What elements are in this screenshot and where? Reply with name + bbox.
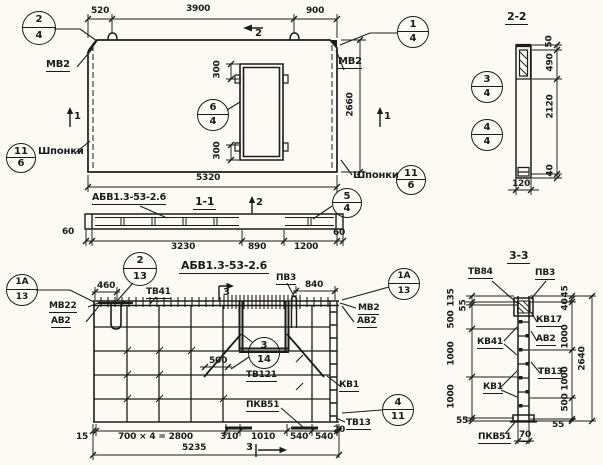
callout-num: 11 <box>397 169 425 179</box>
marker-3-top: 3 <box>223 288 230 298</box>
dim-1200: 1200 <box>294 243 318 252</box>
s33-base <box>513 415 534 421</box>
dim-540-a: 540 <box>290 433 308 442</box>
label-kv41: КВ41 <box>477 338 503 349</box>
s22-bottom-insert <box>518 168 529 177</box>
label-pkv51-plan: ПКВ51 <box>246 401 279 412</box>
callout-sheet: 4 <box>398 34 428 44</box>
label-pv3-s33: ПВ3 <box>535 269 555 280</box>
section-marker-arrows <box>67 25 383 454</box>
dim-1000-r1: 1000 <box>562 317 571 357</box>
dim-1000-l1: 1000 <box>448 334 457 374</box>
dim-60-left: 60 <box>62 228 74 237</box>
callout-sheet: 4 <box>23 31 55 41</box>
callout-num: 4 <box>383 398 413 408</box>
dim-55-top: 55 <box>460 286 469 326</box>
dim-70: 70 <box>519 431 531 442</box>
section-1-1-title: 1-1 <box>193 196 216 210</box>
callout-num: 2 <box>124 256 156 266</box>
plan-title: АБВ1.3-53-2.6 <box>179 260 269 274</box>
dim-900: 900 <box>306 7 324 16</box>
marker-3-bottom: 3 <box>246 443 253 453</box>
dim-20: 20 <box>333 426 345 435</box>
callout-sheet: 13 <box>389 287 419 296</box>
label-av2-left: АВ2 <box>51 317 71 328</box>
label-shponki-left: Шпонки <box>38 147 84 157</box>
dim-5235: 5235 <box>182 444 206 453</box>
section-2-2-title: 2-2 <box>505 11 528 25</box>
label-tv121: ТВ121 <box>246 371 277 382</box>
dim-60-right: 60 <box>333 229 345 238</box>
callout-sheet: 4 <box>198 117 228 127</box>
marker-1-right: 1 <box>384 112 391 122</box>
dim-460: 460 <box>97 282 115 291</box>
callout-1-4: 1 4 <box>397 16 429 48</box>
callout-sheet: 4 <box>472 89 502 99</box>
s33-key-hatch <box>518 301 529 313</box>
drawing-linework <box>0 0 603 465</box>
dim-5320: 5320 <box>196 174 220 183</box>
s33-rails <box>518 296 529 421</box>
label-mv2-right: МВ2 <box>338 57 362 69</box>
label-av2-right: АВ2 <box>357 317 377 328</box>
marker-1-left: 1 <box>74 112 81 122</box>
label-mv22: МВ22 <box>49 302 77 313</box>
leader-lines <box>36 29 546 434</box>
dim-55-bottom-left: 55 <box>456 417 468 426</box>
callout-num: 3 <box>249 341 279 351</box>
dim-3900: 3900 <box>186 5 210 14</box>
callout-num: 1 <box>398 20 428 30</box>
callout-sheet: 6 <box>7 159 35 169</box>
callout-num: 6 <box>198 103 228 113</box>
label-kv17: КВ17 <box>536 316 562 327</box>
dim-300-top: 300 <box>214 50 223 90</box>
lifting-loops <box>108 33 299 40</box>
callout-num: 4 <box>472 123 502 133</box>
marker-2-top: 2 <box>255 29 262 39</box>
dim-500-right: 500 <box>562 383 571 423</box>
door-opening <box>240 64 283 160</box>
engineering-drawing: 520 3900 900 2660 5320 300 300 МВ2 МВ2 Ш… <box>0 0 603 465</box>
dim-540-b: 540 <box>315 433 333 442</box>
callout-num: 11 <box>7 147 35 157</box>
callout-num: 3 <box>472 75 502 85</box>
dim-2120: 2120 <box>547 87 556 127</box>
strip-cells <box>95 218 334 226</box>
dim-3230: 3230 <box>171 243 195 252</box>
callout-key-right: 11 6 <box>396 165 426 195</box>
dim-490: 490 <box>547 43 556 83</box>
callout-num: 1А <box>7 278 37 287</box>
dim-15: 15 <box>76 433 88 442</box>
plan-hook <box>111 302 126 329</box>
dim-310: 310 <box>220 433 238 442</box>
s22-key-hatch <box>520 52 527 75</box>
dim-520: 520 <box>91 7 109 16</box>
dim-40: 40 <box>547 151 556 191</box>
label-tv84: ТВ84 <box>468 268 493 279</box>
label-tv13-plan: ТВ13 <box>346 419 371 430</box>
callout-sheet: 14 <box>249 355 279 365</box>
callout-num: 5 <box>333 192 361 202</box>
callout-1a-13-right: 1А 13 <box>388 268 420 300</box>
plan-edge-ladder <box>330 301 337 422</box>
label-shponki-right: Шпонки <box>353 171 399 181</box>
dim-500-plan: 500 <box>209 357 227 366</box>
callout-4-11: 4 11 <box>382 394 414 426</box>
dim-840: 840 <box>305 281 323 290</box>
callout-key-left: 11 6 <box>6 143 36 173</box>
callout-sheet: 4 <box>333 204 361 214</box>
callout-6-4: 6 4 <box>197 99 229 131</box>
dim-1010: 1010 <box>251 433 275 442</box>
callout-3-4: 3 4 <box>471 71 503 103</box>
label-pv3: ПВ3 <box>276 274 296 285</box>
label-tv13-s33: ТВ13 <box>538 368 563 379</box>
dim-2660: 2660 <box>347 85 356 125</box>
dim-890: 890 <box>248 243 266 252</box>
callout-sheet: 6 <box>397 181 425 191</box>
label-panel-mark-1-1: АБВ1.3-53-2.6 <box>92 193 166 205</box>
callout-sheet: 11 <box>383 412 413 422</box>
callout-sheet: 13 <box>7 293 37 302</box>
callout-3-14: 3 14 <box>248 337 280 369</box>
callout-num: 1А <box>389 272 419 281</box>
plan-stirrups <box>101 295 328 309</box>
label-kv1-plan: КВ1 <box>339 381 359 392</box>
label-pkv51-s33: ПКВ51 <box>478 433 511 444</box>
callout-4-4: 4 4 <box>471 119 503 151</box>
label-av2-s33: АВ2 <box>536 335 556 346</box>
label-mv2-left: МВ2 <box>46 60 70 72</box>
callout-sheet: 13 <box>124 272 156 282</box>
s22-bar <box>516 45 531 178</box>
label-kv1-s33: КВ1 <box>483 383 503 394</box>
dim-2800: 700 × 4 = 2800 <box>118 433 193 442</box>
section-marker-lines <box>70 28 380 457</box>
label-tv41: ТВ41 <box>146 288 171 299</box>
callout-1a-13-left: 1А 13 <box>6 274 38 306</box>
marker-2-bottom: 2 <box>256 198 263 208</box>
callout-5-4: 5 4 <box>332 188 362 218</box>
callout-sheet: 4 <box>472 137 502 147</box>
dim-55-bottom-right: 55 <box>552 421 564 430</box>
dim-300-bottom: 300 <box>214 131 223 171</box>
dim-120: 120 <box>512 180 530 189</box>
label-mv2-plan: МВ2 <box>358 304 379 315</box>
callout-num: 2 <box>23 15 55 25</box>
callout-2-4: 2 4 <box>22 11 56 45</box>
dim-1000-l2: 1000 <box>448 377 457 417</box>
s22-key <box>517 47 531 80</box>
section-3-3-title: 3-3 <box>507 250 530 264</box>
dim-2640: 2640 <box>579 339 588 379</box>
callout-2-13: 2 13 <box>123 252 157 286</box>
